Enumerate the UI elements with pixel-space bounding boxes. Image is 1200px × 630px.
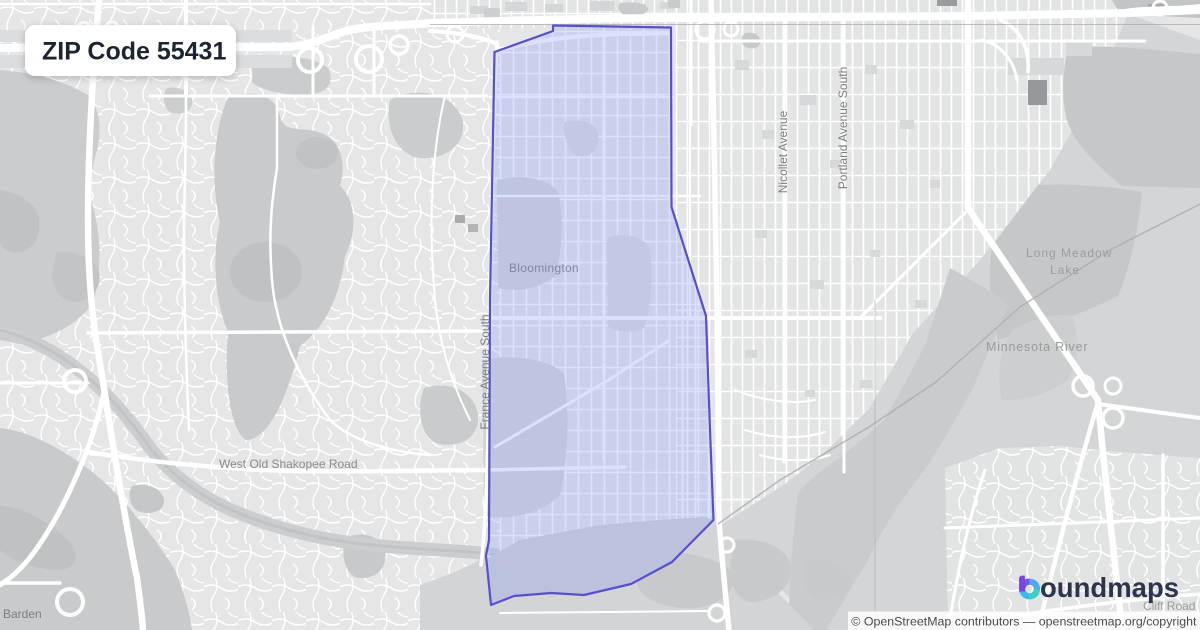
svg-text:Barden: Barden <box>3 607 42 621</box>
svg-text:Lake: Lake <box>1050 263 1080 277</box>
svg-text:ZIP Code 55431: ZIP Code 55431 <box>42 38 226 66</box>
svg-text:Minnesota River: Minnesota River <box>986 340 1088 354</box>
svg-text:oundmaps: oundmaps <box>1040 572 1179 603</box>
svg-text:France Avenue South: France Avenue South <box>478 314 492 429</box>
svg-text:West Old Shakopee Road: West Old Shakopee Road <box>219 457 358 471</box>
svg-text:Nicollet Avenue: Nicollet Avenue <box>776 110 790 193</box>
svg-text:Long Meadow: Long Meadow <box>1026 246 1112 260</box>
svg-text:Bloomington: Bloomington <box>509 261 579 275</box>
svg-text:Portland Avenue South: Portland Avenue South <box>836 67 850 190</box>
svg-text:© OpenStreetMap contributors —: © OpenStreetMap contributors — openstree… <box>851 614 1197 628</box>
